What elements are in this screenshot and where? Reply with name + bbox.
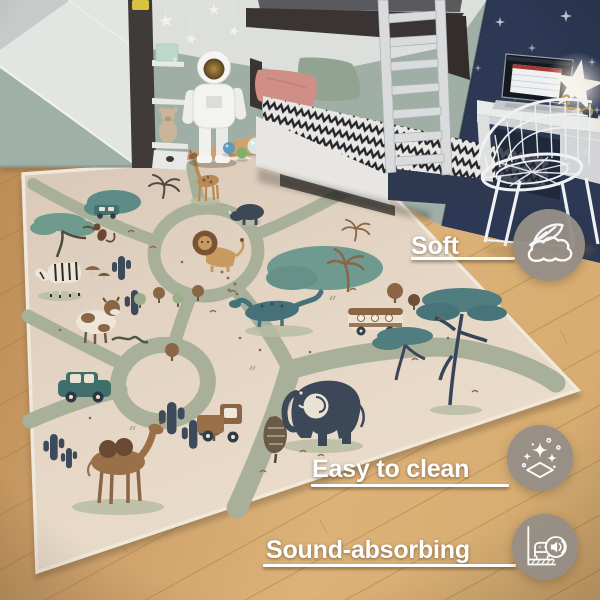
badge-circle-sound-absorbing — [512, 514, 578, 580]
badge-underline-sound-absorbing — [263, 564, 516, 567]
feather-cloud-icon — [522, 218, 576, 272]
sofa-speaker-icon — [520, 522, 570, 572]
sparkling-surface-icon — [516, 434, 564, 482]
badge-label-soft: Soft — [411, 234, 459, 259]
room-scene — [0, 0, 600, 600]
badge-underline-easy-to-clean — [311, 484, 509, 487]
badge-label-sound-absorbing: Sound-absorbing — [266, 538, 470, 563]
vignette — [0, 0, 600, 600]
badge-underline-soft — [411, 257, 515, 260]
badge-circle-easy-to-clean — [507, 425, 573, 491]
product-image: Soft Easy to clean Sound-absorbing — [0, 0, 600, 600]
badge-circle-soft — [513, 209, 585, 281]
badge-label-easy-to-clean: Easy to clean — [312, 457, 469, 482]
